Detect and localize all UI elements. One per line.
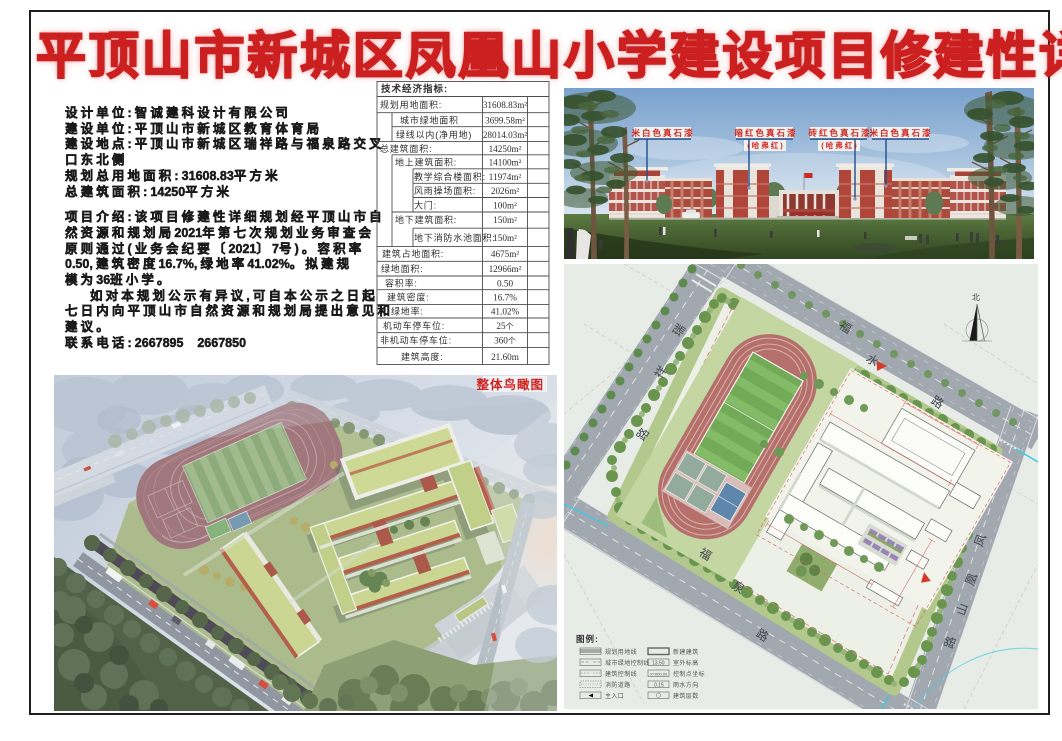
- svg-text:3699.58m²: 3699.58m²: [485, 116, 525, 126]
- svg-text:150m²: 150m²: [493, 215, 517, 225]
- svg-text:米白色真石漆: 米白色真石漆: [869, 128, 932, 138]
- svg-text:(哈弗红): (哈弗红): [821, 140, 859, 150]
- svg-text:13.50: 13.50: [652, 661, 665, 667]
- svg-text:建筑密度:: 建筑密度:: [387, 292, 430, 303]
- svg-text:整体鸟瞰图: 整体鸟瞰图: [476, 377, 544, 392]
- svg-text:14250m²: 14250m²: [489, 144, 522, 154]
- svg-text:非机动车停车位:: 非机动车停车位:: [380, 335, 452, 346]
- svg-text:16.7%: 16.7%: [493, 293, 517, 303]
- svg-text:总建筑面积:: 总建筑面积:: [380, 143, 432, 154]
- svg-text:暗红色真石漆: 暗红色真石漆: [734, 128, 797, 138]
- svg-text:2026m²: 2026m²: [491, 186, 520, 196]
- svg-text:地上建筑面积:: 地上建筑面积:: [395, 157, 457, 168]
- svg-text:建筑层数: 建筑层数: [673, 692, 699, 700]
- svg-text:25个: 25个: [496, 321, 513, 331]
- svg-text:31608.83m²: 31608.83m²: [483, 100, 528, 110]
- svg-text:机动车停车位:: 机动车停车位:: [383, 320, 445, 331]
- svg-text:雨水方向: 雨水方向: [673, 681, 699, 689]
- svg-text:容积率:: 容积率:: [385, 278, 418, 289]
- svg-text:大门:: 大门:: [414, 200, 437, 211]
- svg-text:建筑高度:: 建筑高度:: [401, 351, 444, 362]
- svg-text:28014.03m²: 28014.03m²: [483, 130, 528, 140]
- svg-text:14100m²: 14100m²: [489, 158, 522, 168]
- svg-text:360个: 360个: [494, 336, 516, 346]
- svg-text:消防道路: 消防道路: [605, 681, 631, 689]
- svg-text:城市绿地面积: 城市绿地面积: [400, 115, 459, 126]
- svg-text:教学综合楼面积:: 教学综合楼面积:: [414, 171, 486, 182]
- svg-text:12966m²: 12966m²: [489, 264, 522, 274]
- svg-text:主入口: 主入口: [605, 692, 624, 700]
- svg-text:11974m²: 11974m²: [489, 172, 522, 182]
- svg-text:绿线以内(净用地): 绿线以内(净用地): [396, 129, 472, 140]
- svg-text:风雨操场面积:: 风雨操场面积:: [414, 185, 476, 196]
- svg-text:北: 北: [972, 293, 980, 302]
- svg-text:室外标高: 室外标高: [673, 659, 699, 667]
- svg-text:建筑占地面积:: 建筑占地面积:: [382, 248, 444, 259]
- svg-text:0.15: 0.15: [654, 683, 664, 689]
- svg-text:150m²: 150m²: [493, 233, 517, 243]
- svg-text:100m²: 100m²: [493, 201, 517, 211]
- svg-text:绿地率:: 绿地率:: [391, 306, 424, 317]
- svg-text:规划用地线: 规划用地线: [605, 648, 637, 656]
- svg-text:X=000.00: X=000.00: [650, 672, 668, 677]
- svg-text:建筑控制线: 建筑控制线: [605, 670, 637, 678]
- svg-text:图例:: 图例:: [576, 634, 599, 644]
- svg-text:绿地面积:: 绿地面积:: [381, 263, 424, 274]
- svg-text:砖红色真石漆: 砖红色真石漆: [808, 128, 871, 138]
- svg-text:技术经济指标:: 技术经济指标:: [381, 83, 448, 95]
- svg-text:城市绿地控制线: 城市绿地控制线: [605, 659, 650, 667]
- svg-text:控制点坐标: 控制点坐标: [673, 670, 705, 678]
- svg-text:41.02%: 41.02%: [491, 307, 520, 317]
- svg-text:21.60m: 21.60m: [491, 352, 519, 362]
- svg-text:米白色真石漆: 米白色真石漆: [631, 128, 694, 138]
- svg-text:4675m²: 4675m²: [491, 249, 520, 259]
- svg-text:新建建筑: 新建建筑: [673, 648, 699, 656]
- svg-text:地下建筑面积:: 地下建筑面积:: [395, 214, 457, 225]
- svg-text:规划用地面积:: 规划用地面积:: [380, 99, 442, 110]
- svg-text:(哈弗红): (哈弗红): [747, 140, 785, 150]
- svg-text:地下消防水池面积:: 地下消防水池面积:: [414, 232, 496, 243]
- svg-text:0.50: 0.50: [497, 279, 513, 289]
